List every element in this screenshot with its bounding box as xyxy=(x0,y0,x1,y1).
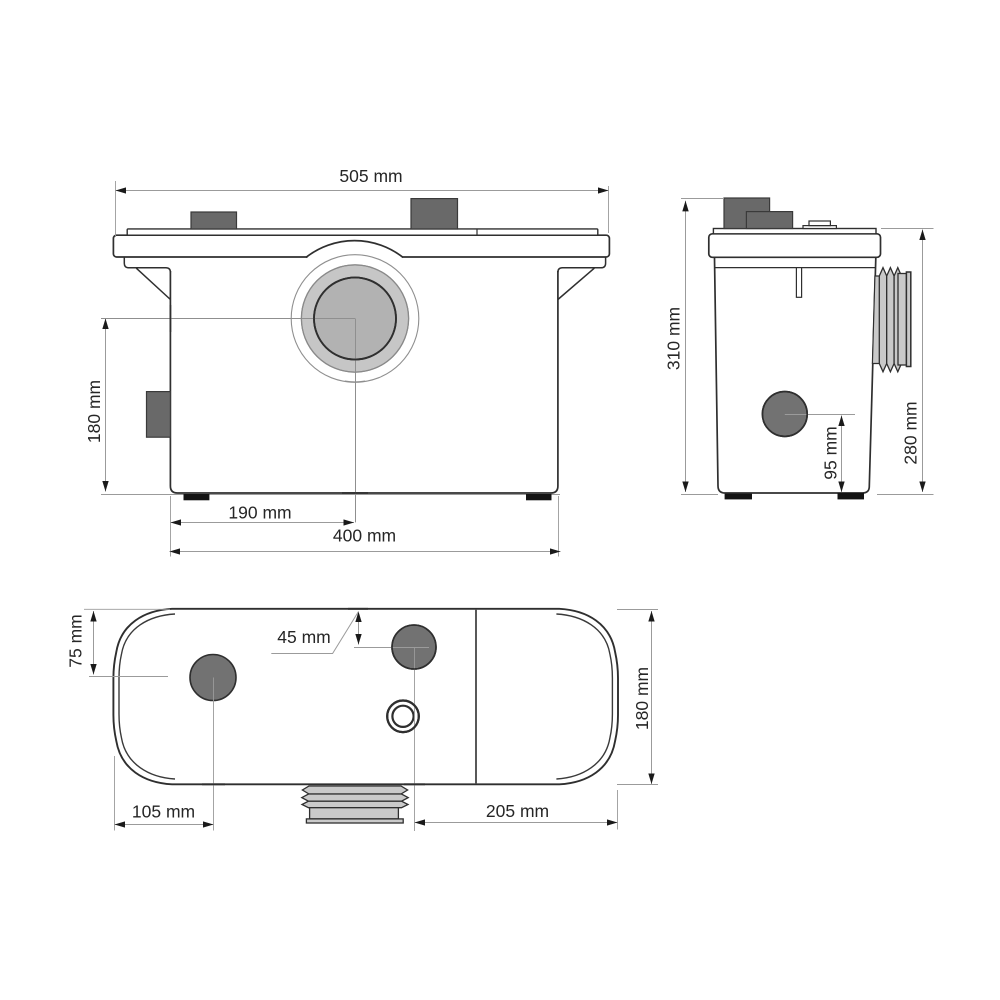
svg-text:280 mm: 280 mm xyxy=(900,401,920,464)
svg-text:105 mm: 105 mm xyxy=(132,802,195,822)
svg-text:180 mm: 180 mm xyxy=(84,380,104,443)
svg-text:95 mm: 95 mm xyxy=(821,426,841,479)
svg-text:75 mm: 75 mm xyxy=(66,614,86,667)
svg-text:310 mm: 310 mm xyxy=(663,307,683,370)
svg-text:505 mm: 505 mm xyxy=(339,166,402,186)
svg-text:205 mm: 205 mm xyxy=(486,801,549,821)
svg-text:180 mm: 180 mm xyxy=(632,667,652,730)
svg-text:190 mm: 190 mm xyxy=(228,503,291,523)
svg-text:45 mm: 45 mm xyxy=(277,627,330,647)
svg-text:400 mm: 400 mm xyxy=(333,526,396,546)
